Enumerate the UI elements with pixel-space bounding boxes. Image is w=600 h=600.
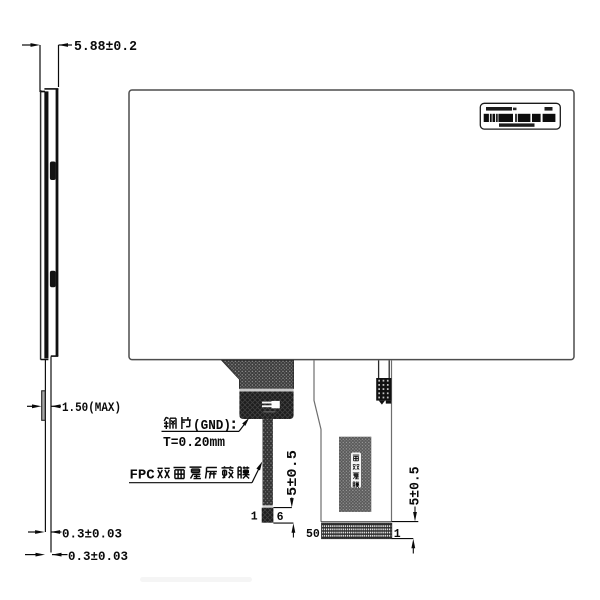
svg-text:50: 50 xyxy=(306,528,320,541)
svg-text:0.3±0.03: 0.3±0.03 xyxy=(68,549,128,564)
svg-text:6: 6 xyxy=(277,511,284,524)
svg-text:5.88±0.2: 5.88±0.2 xyxy=(74,39,137,55)
svg-text:1.50(MAX): 1.50(MAX) xyxy=(62,400,121,415)
svg-text:5±0.5: 5±0.5 xyxy=(409,467,424,506)
svg-text:0.3±0.03: 0.3±0.03 xyxy=(62,526,122,541)
svg-text:1: 1 xyxy=(251,511,258,524)
svg-text:5±0.5: 5±0.5 xyxy=(286,450,301,496)
svg-text:FPC: FPC xyxy=(130,468,156,484)
svg-text:T=0.20mm: T=0.20mm xyxy=(163,436,225,451)
